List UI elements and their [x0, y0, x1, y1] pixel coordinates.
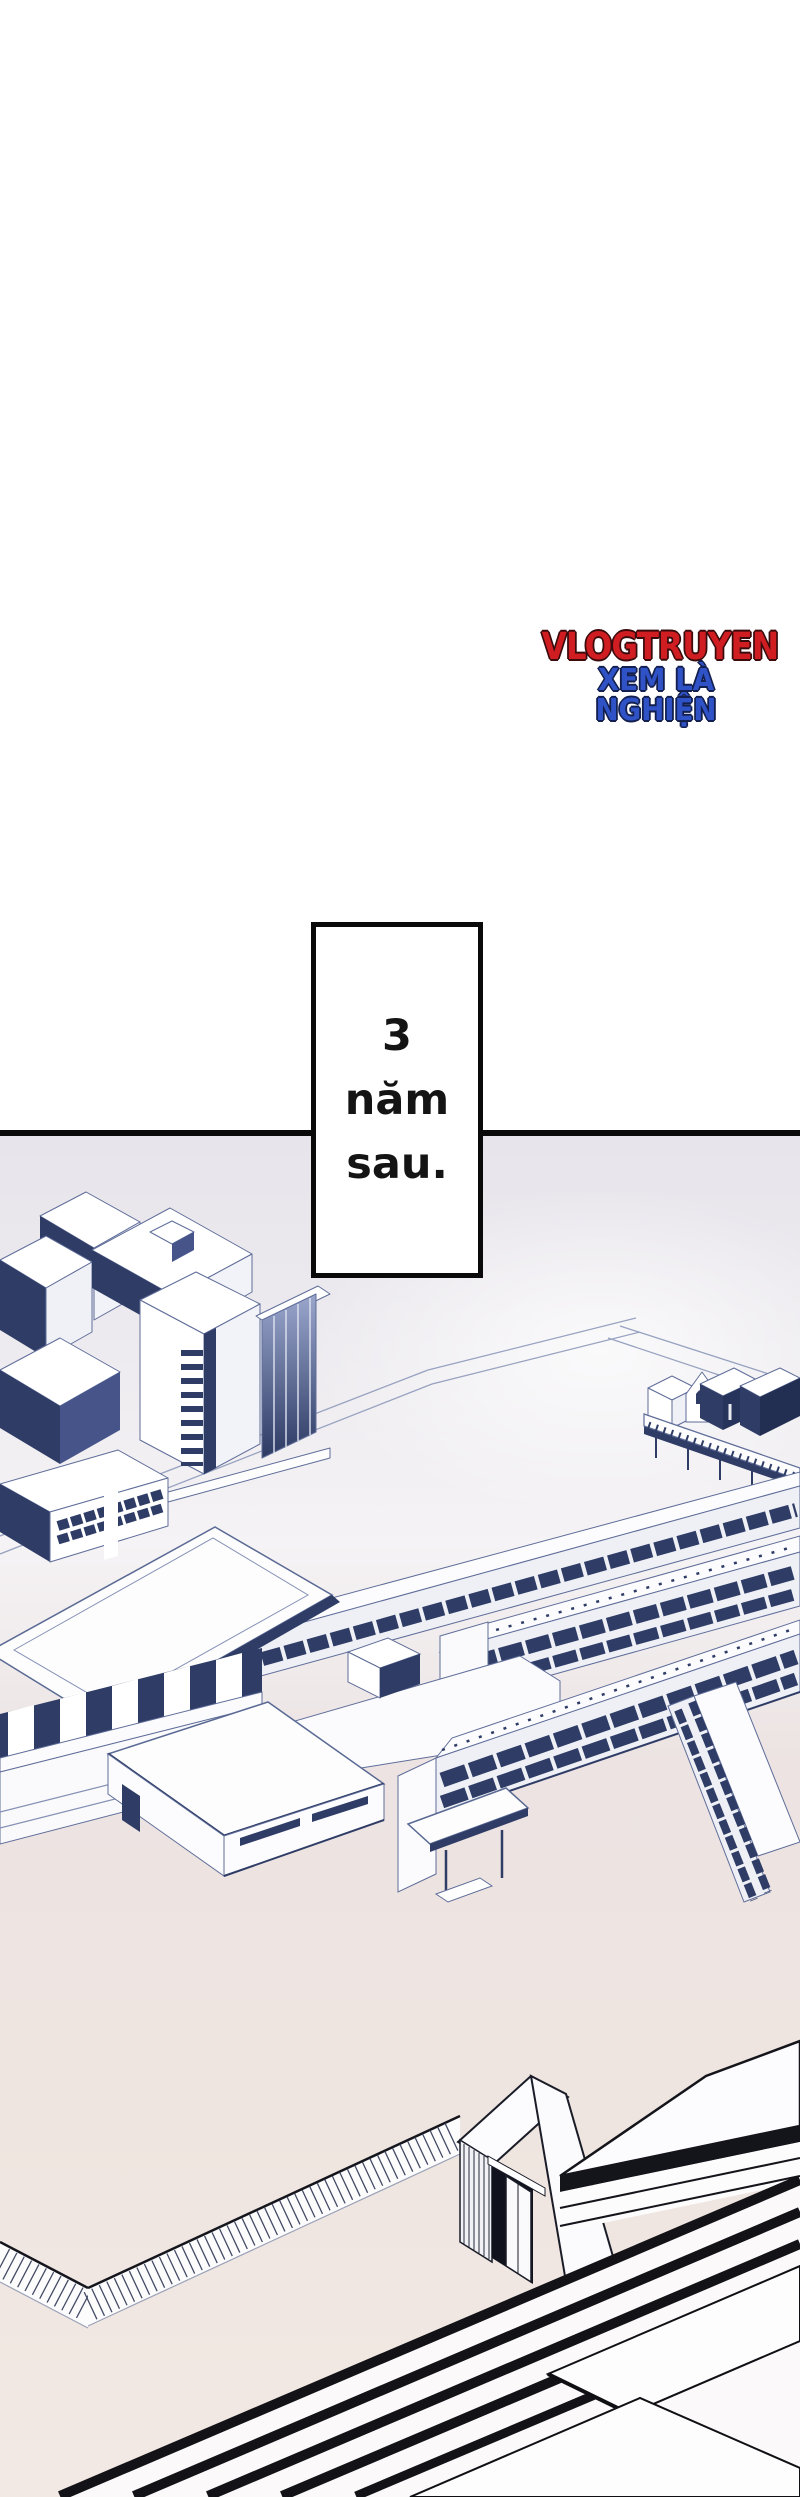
site-watermark: VLOGTRUYEN XEM LÀ NGHIỆN [526, 628, 786, 726]
caption-line-2: năm [345, 1068, 449, 1132]
campus-illustration [0, 1136, 800, 2497]
comic-page: VLOGTRUYEN XEM LÀ NGHIỆN [0, 0, 800, 2497]
caption-box: 3 năm sau. [311, 922, 483, 1278]
caption-line-3: sau. [346, 1132, 448, 1196]
watermark-title: VLOGTRUYEN [542, 628, 771, 665]
watermark-subtitle: XEM LÀ NGHIỆN [536, 666, 775, 726]
caption-line-1: 3 [382, 1004, 412, 1068]
